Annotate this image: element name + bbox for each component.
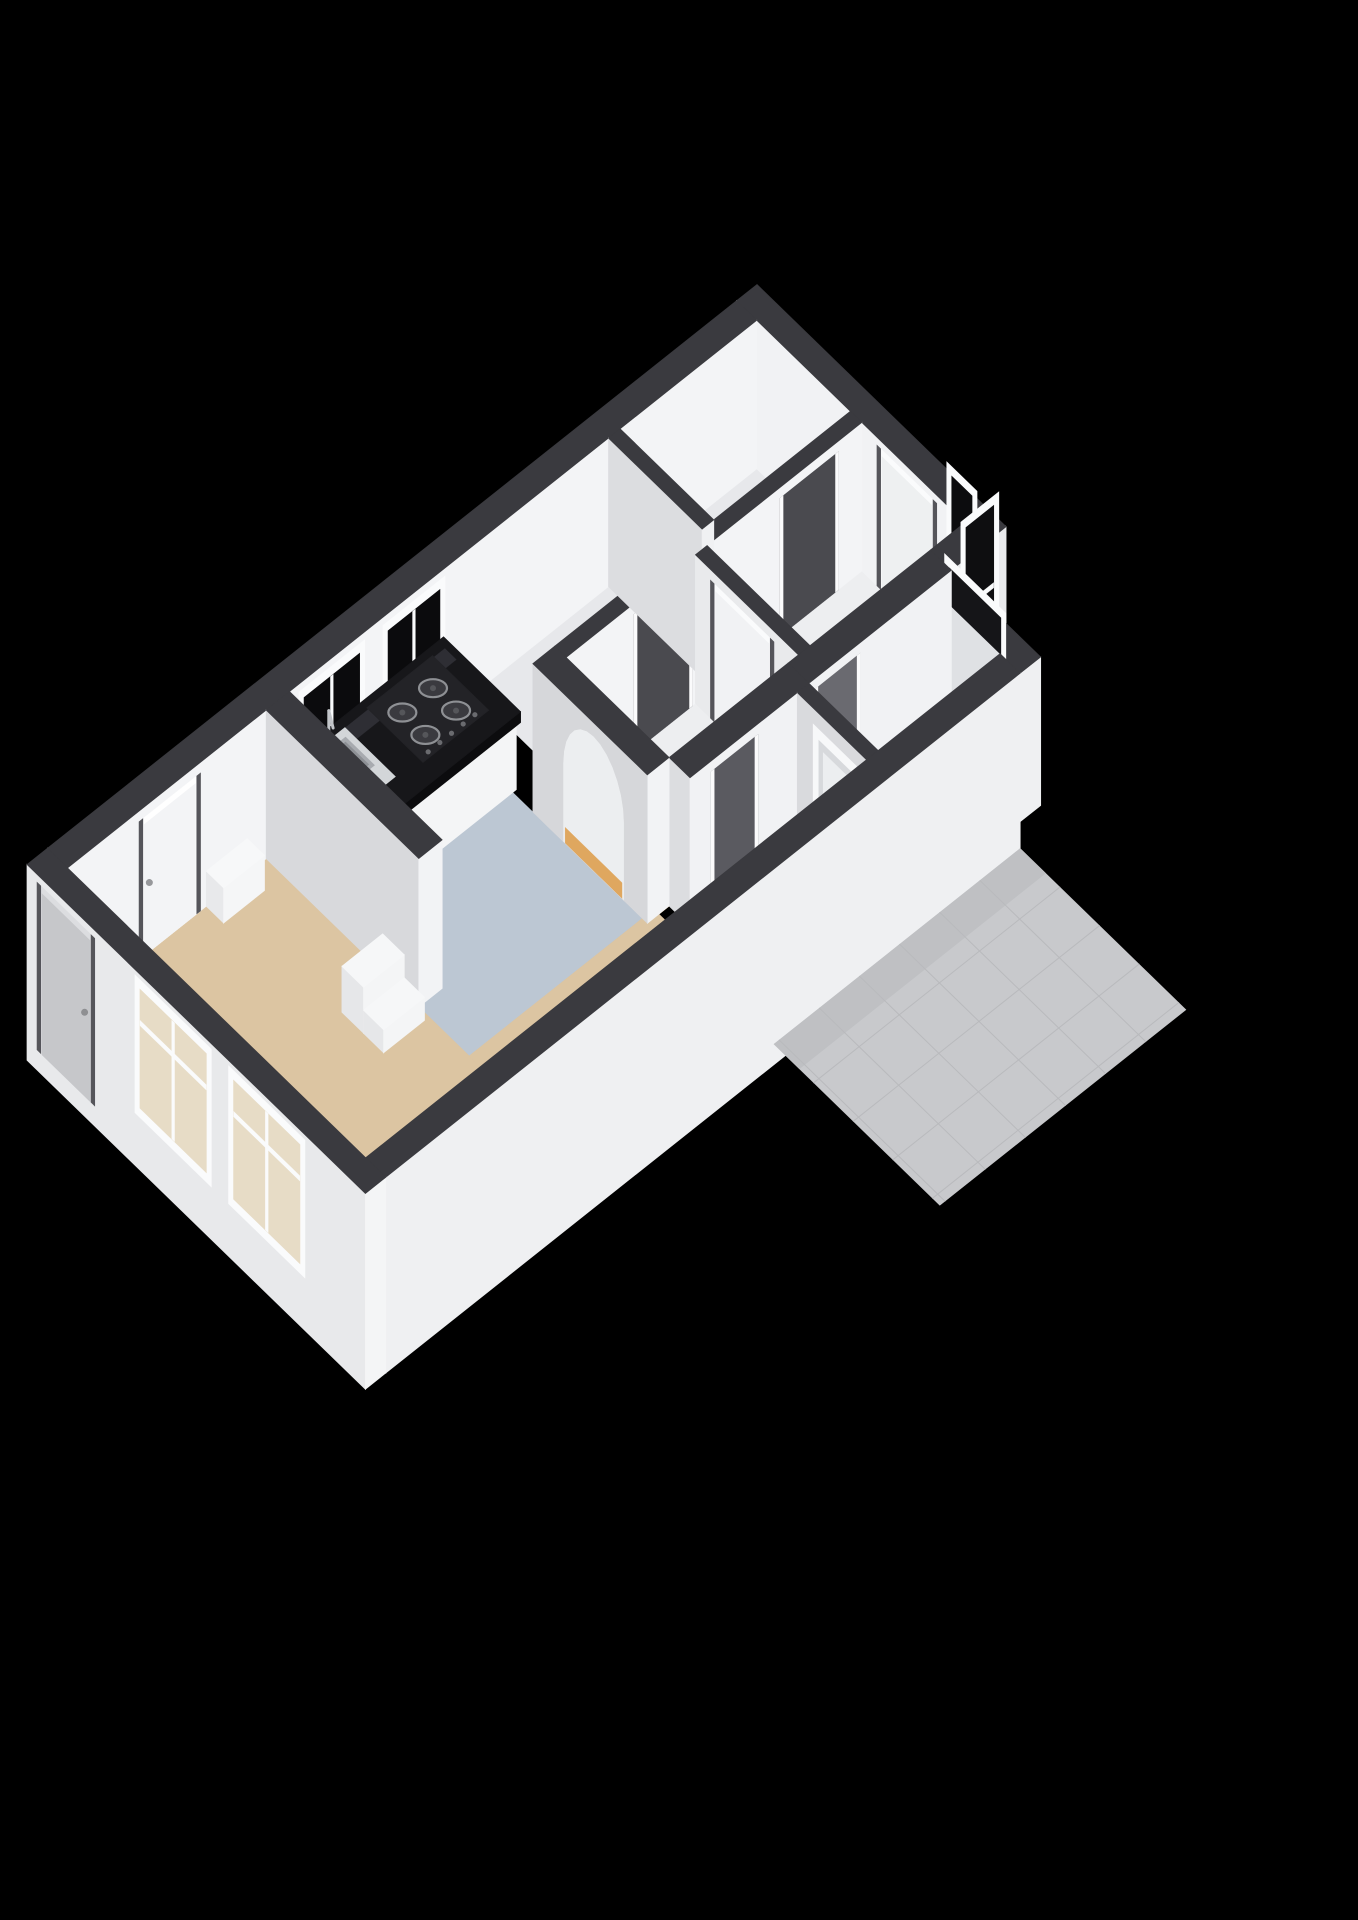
floorplan-scene-svg xyxy=(0,0,1358,1920)
floorplan-3d-render xyxy=(0,0,1358,1920)
